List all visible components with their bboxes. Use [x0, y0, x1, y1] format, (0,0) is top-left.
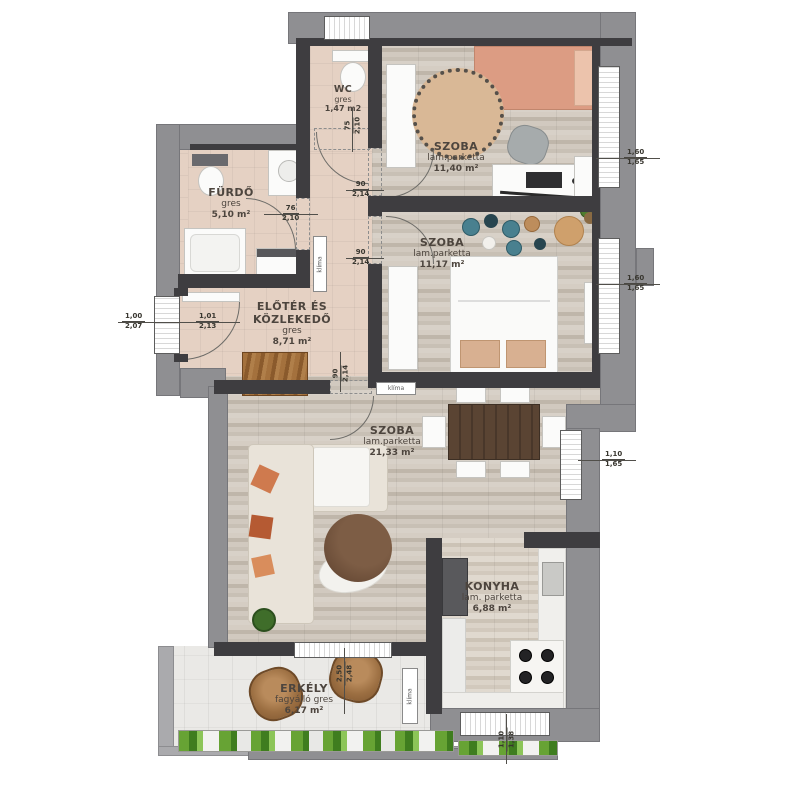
room-name: FÜRDŐ	[188, 186, 274, 199]
room-label-eloter: ELŐTÉR ÉS KÖZLEKEDŐ gres 8,71 m²	[234, 300, 350, 348]
wall-hall-bedrooms-c	[368, 264, 382, 388]
floor-plan: klíma klíma klíma 1,60 1,65 1,60 1,65 1,…	[0, 0, 800, 800]
dim-window-bed1: 1,60 1,65	[624, 148, 647, 167]
dim-window-bed2: 1,60 1,65	[624, 274, 647, 293]
wall-living-balcony-a	[214, 642, 296, 656]
bed2-duvet-fold	[458, 300, 550, 302]
balcony-planter-left	[178, 730, 454, 752]
living-plant	[252, 608, 276, 632]
dining-table	[448, 404, 540, 460]
dim-width: 1,01	[196, 312, 219, 322]
dim-bed1-door: 90 2,14	[352, 180, 369, 199]
dim-height: 2,13	[199, 322, 216, 331]
dim-height: 1,65	[605, 460, 622, 469]
cooktop-burner-3	[519, 671, 532, 684]
bed2-wardrobe	[388, 266, 418, 370]
decor-navy-1	[484, 214, 498, 228]
room-material: lam.parketta	[334, 437, 450, 448]
wall-living-balcony-b	[390, 642, 430, 656]
entry-door-leaf	[182, 292, 240, 302]
decor-tan	[524, 216, 540, 232]
dim-height: 2,48	[346, 665, 355, 682]
wall-bed1-bed2	[372, 196, 600, 212]
decor-navy-2	[534, 238, 546, 250]
jamb-entry-bottom	[174, 354, 188, 362]
room-name: ERKÉLY	[248, 682, 360, 695]
room-label-wc: WC gres 1,47 m2	[312, 84, 374, 113]
dim-width: 1,10	[602, 450, 625, 460]
dim-width: 90	[353, 180, 369, 190]
room-name-line1: ELŐTÉR ÉS	[234, 300, 350, 313]
dim-entry-inner: 1,01 2,13	[196, 312, 219, 331]
dim-height: 2,10	[354, 117, 363, 134]
room-material: lam. parketta	[442, 593, 542, 604]
room-material: lam.parketta	[400, 153, 512, 164]
dining-chair-bottom2	[500, 461, 530, 478]
window-bedroom1	[598, 66, 620, 188]
bed1-laptop	[526, 172, 562, 188]
decor-teal-3	[506, 240, 522, 256]
room-material: lam.parketta	[386, 249, 498, 260]
room-material: gres	[234, 326, 350, 337]
room-label-furdo: FÜRDŐ gres 5,10 m²	[188, 186, 274, 221]
room-area: 6,17 m²	[248, 706, 360, 717]
dining-chair-bottom1	[456, 461, 486, 478]
klima-label: klíma	[317, 256, 324, 272]
window-bedroom2	[598, 238, 620, 354]
room-area: 5,10 m²	[188, 210, 274, 221]
dim-entry-outer: 1,00 2,07	[122, 312, 145, 331]
wc-cistern	[332, 50, 372, 62]
bedroom2-door-opening	[368, 216, 382, 264]
bed2-pillow-right	[506, 340, 546, 368]
room-area: 8,71 m²	[234, 337, 350, 348]
cooktop-burner-1	[519, 649, 532, 662]
cooktop-burner-4	[541, 671, 554, 684]
room-label-szoba3: SZOBA lam.parketta 21,33 m²	[334, 424, 450, 459]
window-wc	[324, 16, 370, 40]
dim-height: 2,14	[352, 258, 369, 267]
dim-height: 1,65	[627, 158, 644, 167]
room-area: 11,17 m²	[386, 260, 498, 271]
room-name-line2: KÖZLEKEDŐ	[234, 313, 350, 326]
room-area: 1,47 m2	[312, 104, 374, 113]
dim-width: 1,00	[122, 312, 145, 322]
room-area: 6,88 m²	[442, 604, 542, 615]
room-material: gres	[188, 199, 274, 210]
klima-unit-hall: klíma	[313, 236, 327, 292]
dining-chair-top2	[500, 386, 530, 403]
kitchen-sink	[542, 562, 564, 596]
room-material: fagyálló gres	[248, 695, 360, 706]
entry-door-opening	[154, 296, 180, 354]
klima-label: klíma	[407, 688, 414, 704]
dim-living-door: 90 2,14	[332, 359, 351, 389]
klima-unit-living: klíma	[376, 382, 416, 395]
wall-kitchen-left	[426, 538, 442, 714]
wall-bath-right-a	[296, 152, 310, 198]
room-label-szoba1: SZOBA lam.parketta 11,40 m²	[400, 140, 512, 175]
room-name: SZOBA	[334, 424, 450, 437]
sofa-pillow-3	[251, 554, 275, 578]
dim-width: 1,60	[624, 148, 647, 158]
decor-teal-1	[462, 218, 480, 236]
wall-balcony-left	[158, 646, 174, 754]
wall-left-living	[208, 386, 228, 648]
klima-unit-balcony: klíma	[402, 668, 418, 724]
wall-bath-bottom	[178, 274, 310, 288]
cooktop-burner-2	[541, 649, 554, 662]
dim-bath-door: 76 2,10	[282, 204, 299, 223]
dim-height: 2,07	[125, 322, 142, 331]
kitchen-counter-left	[442, 618, 466, 694]
dim-width: 76	[283, 204, 299, 214]
room-area: 21,33 m²	[334, 448, 450, 459]
jamb-entry-top	[174, 288, 188, 296]
bed2-side-table	[554, 216, 584, 246]
room-name: SZOBA	[386, 236, 498, 249]
wall-wc-left	[296, 40, 310, 152]
dim-height: 1,65	[627, 284, 644, 293]
bath-tub-inner	[190, 234, 240, 272]
bath-toilet-cistern	[192, 154, 228, 166]
dim-width: 90	[353, 248, 369, 258]
dim-window-living: 1,10 1,65	[602, 450, 625, 469]
room-name: SZOBA	[400, 140, 512, 153]
dim-wc-door: 75 2,10	[344, 111, 363, 141]
room-material: gres	[312, 95, 374, 104]
room-label-erkely: ERKÉLY fagyálló gres 6,17 m²	[248, 682, 360, 717]
dim-height: 1,38	[508, 731, 517, 748]
washing-machine-panel	[257, 249, 297, 257]
wall-kitchen-top-stub	[524, 532, 600, 548]
decor-teal-2	[502, 220, 520, 238]
dim-width: 75	[344, 118, 354, 134]
dim-height: 2,14	[342, 365, 351, 382]
balcony-sliding-door	[294, 642, 392, 658]
dim-width: 90	[332, 366, 342, 382]
wall-bath-top-edge	[190, 144, 308, 150]
wall-hall-living	[214, 380, 330, 394]
dim-width: 1,10	[498, 728, 508, 751]
dim-width: 1,60	[624, 274, 647, 284]
room-label-szoba2: SZOBA lam.parketta 11,17 m²	[386, 236, 498, 271]
bedroom1-door-opening	[368, 148, 382, 196]
room-area: 11,40 m²	[400, 164, 512, 175]
dim-kitchen-window: 1,10 1,38	[498, 725, 517, 755]
dim-height: 2,14	[352, 190, 369, 199]
room-label-konyha: KONYHA lam. parketta 6,88 m²	[442, 580, 542, 615]
dim-height: 2,10	[282, 214, 299, 223]
bed2-pillow-left	[460, 340, 500, 368]
room-name: KONYHA	[442, 580, 542, 593]
room-name: WC	[312, 84, 374, 95]
dim-bed2-door: 90 2,14	[352, 248, 369, 267]
pouf	[324, 514, 392, 582]
dining-chair-top1	[456, 386, 486, 403]
klima-label: klíma	[388, 385, 404, 392]
sofa-pillow-2	[249, 515, 274, 540]
cooktop	[510, 640, 564, 694]
window-living	[560, 430, 582, 500]
